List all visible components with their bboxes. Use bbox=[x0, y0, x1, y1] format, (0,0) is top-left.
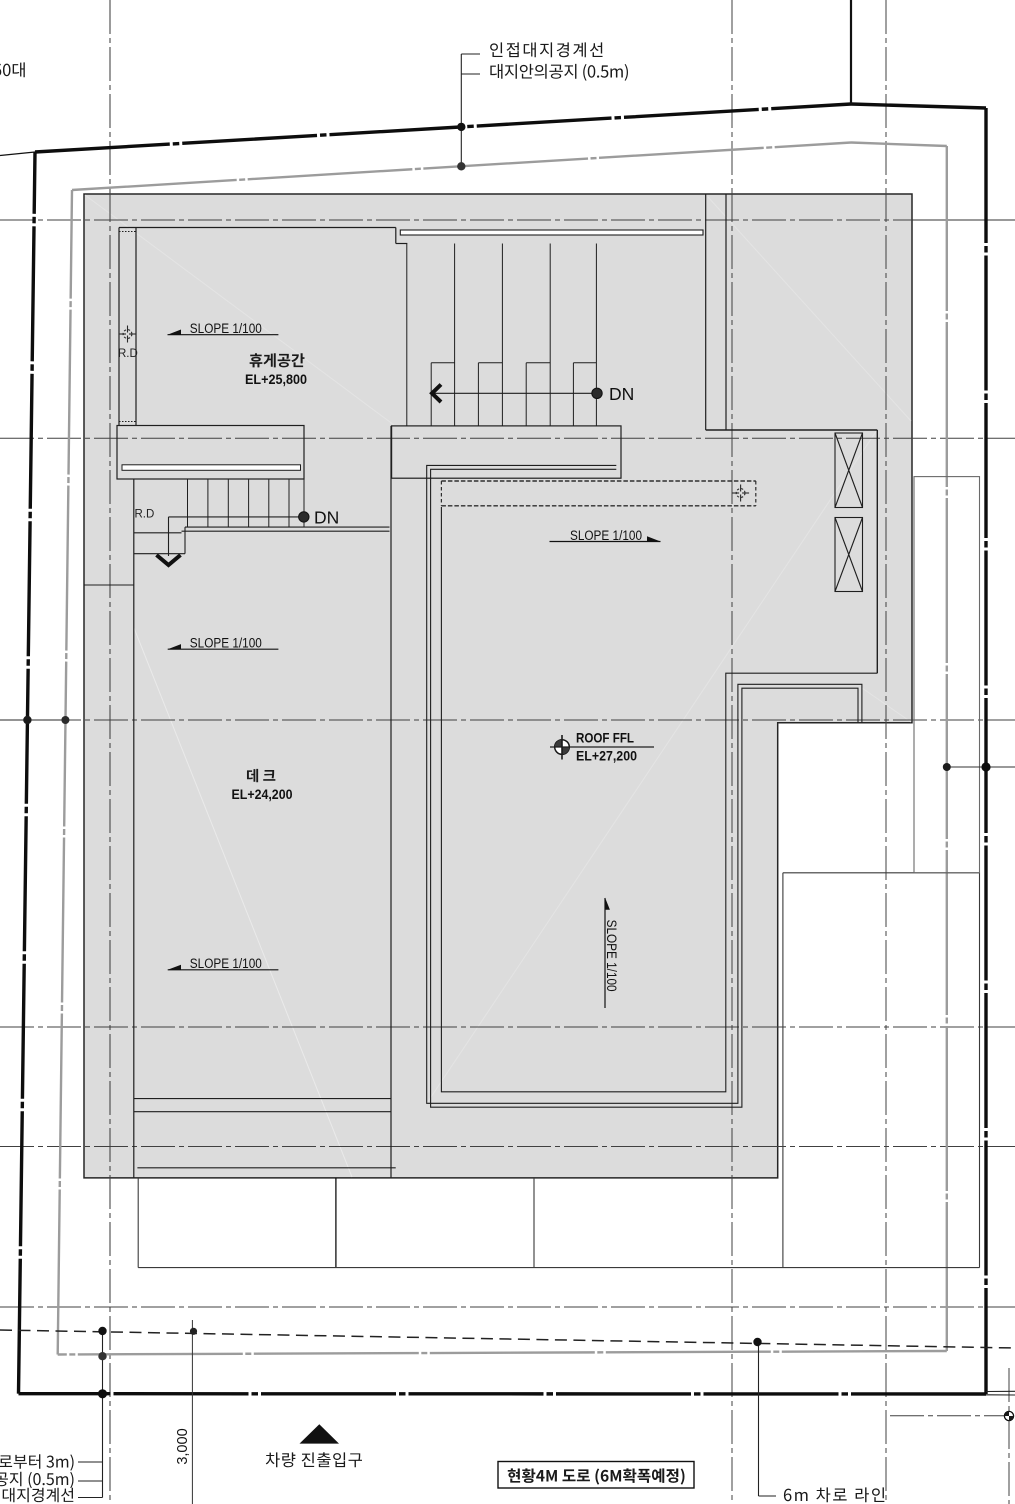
svg-text:EL+27,200: EL+27,200 bbox=[576, 749, 637, 764]
svg-text:SLOPE 1/100: SLOPE 1/100 bbox=[604, 920, 619, 992]
svg-text:SLOPE 1/100: SLOPE 1/100 bbox=[190, 956, 262, 971]
svg-text:DN: DN bbox=[314, 508, 339, 528]
svg-text:SLOPE 1/100: SLOPE 1/100 bbox=[570, 528, 642, 543]
svg-text:R.D: R.D bbox=[118, 348, 138, 360]
svg-text:ROOF FFL: ROOF FFL bbox=[576, 730, 634, 746]
svg-text:3,000: 3,000 bbox=[175, 1428, 191, 1464]
svg-text:EL+25,800: EL+25,800 bbox=[245, 372, 307, 387]
svg-text:EL+24,200: EL+24,200 bbox=[232, 787, 293, 802]
svg-text:SLOPE 1/100: SLOPE 1/100 bbox=[190, 636, 262, 651]
svg-text:DN: DN bbox=[609, 384, 634, 404]
svg-text:SLOPE 1/100: SLOPE 1/100 bbox=[190, 321, 262, 336]
svg-text:R.D: R.D bbox=[135, 509, 155, 521]
